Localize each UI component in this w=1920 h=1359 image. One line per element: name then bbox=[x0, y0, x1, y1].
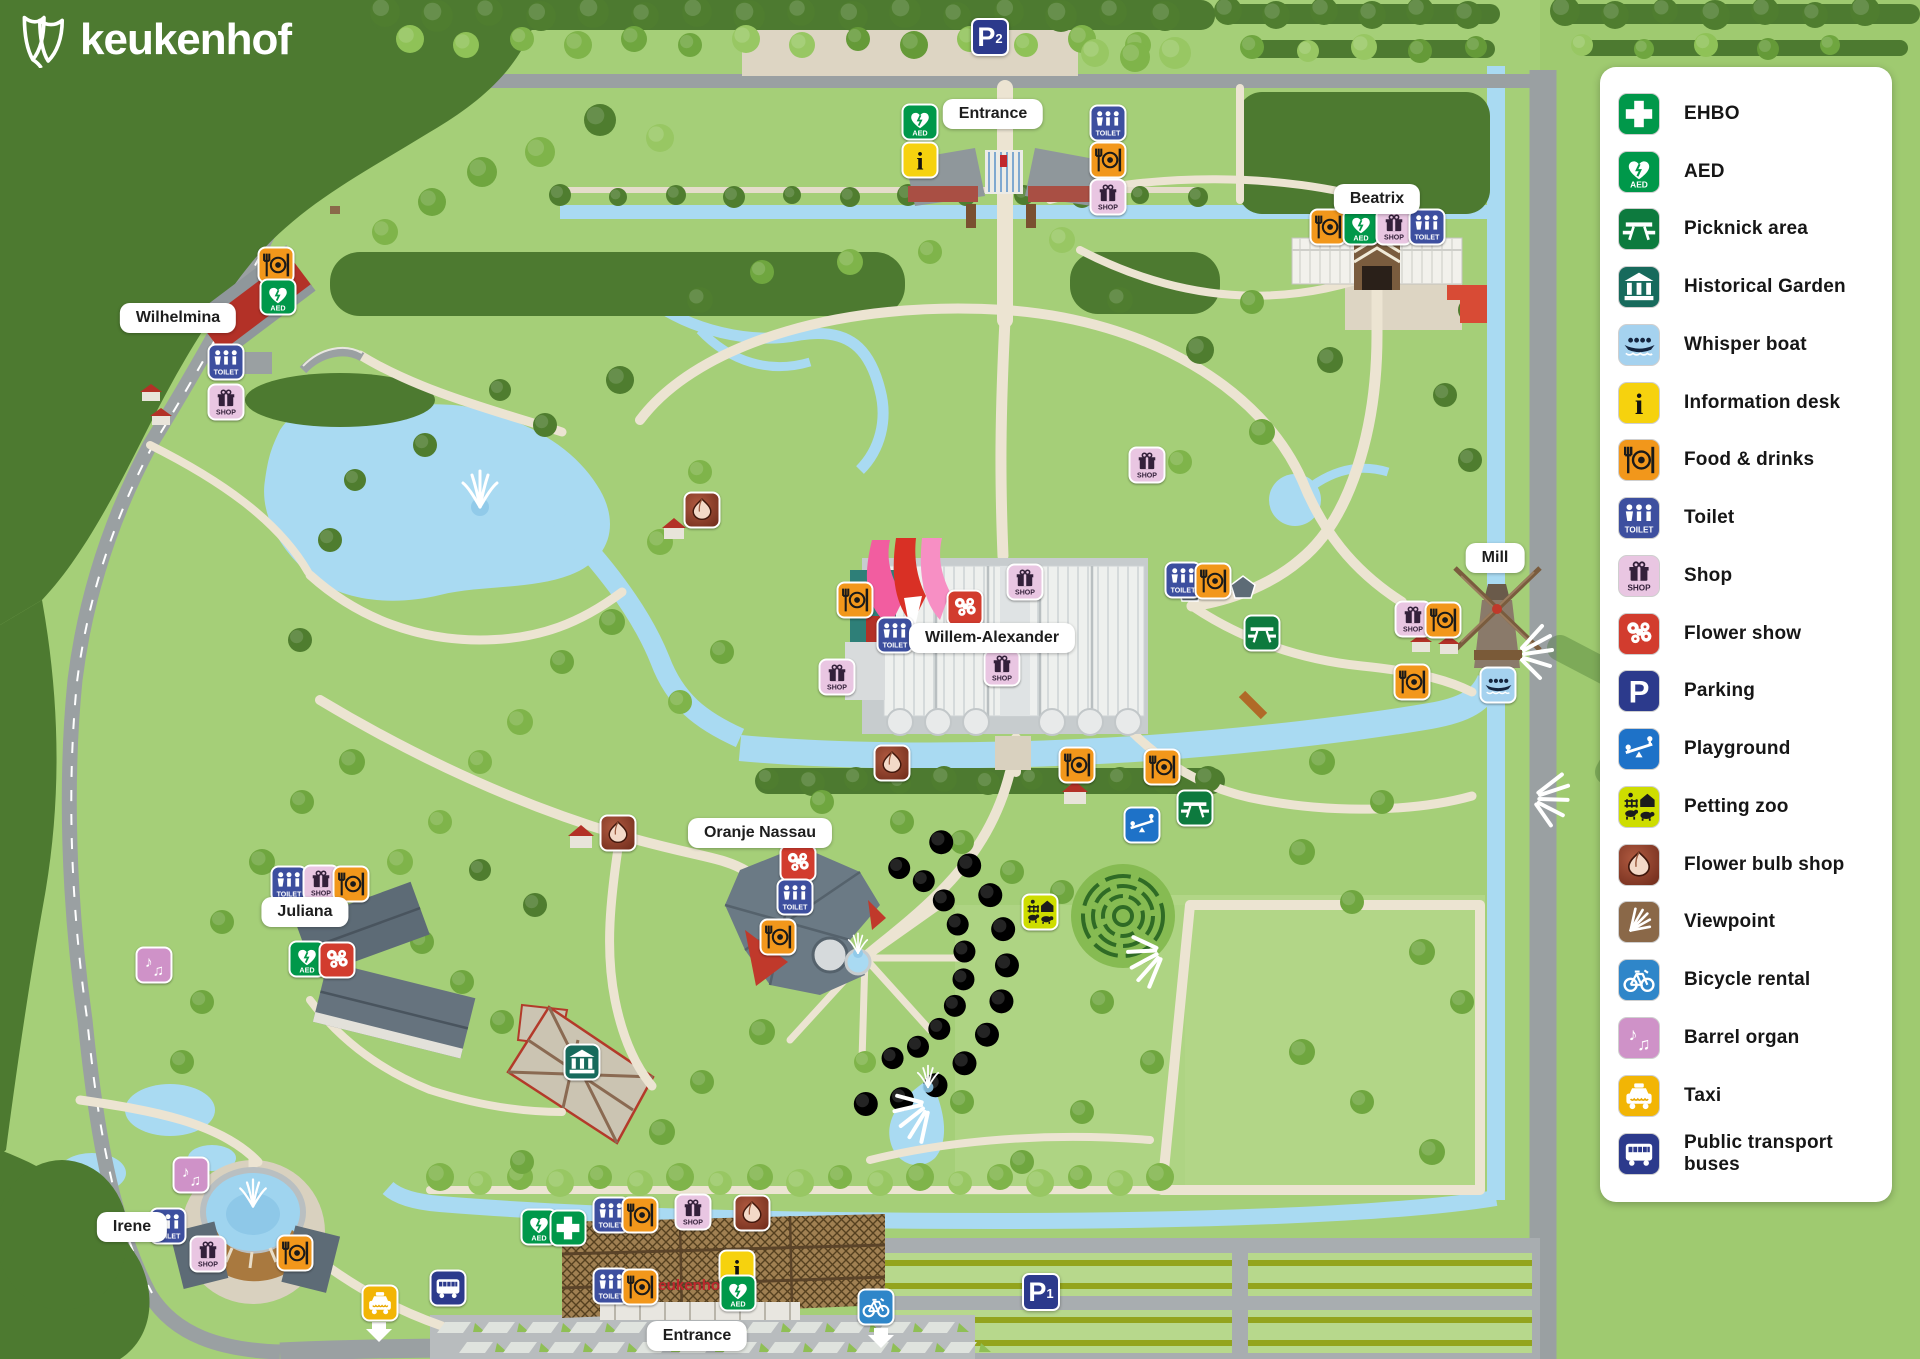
legend-item-food: Food & drinks bbox=[1618, 439, 1892, 481]
legend-item-historical: Historical Garden bbox=[1618, 266, 1892, 308]
whisperboat-icon[interactable] bbox=[1480, 667, 1517, 704]
legend-item-label: Barrel organ bbox=[1684, 1027, 1799, 1049]
svg-text:TOILET: TOILET bbox=[1096, 130, 1122, 137]
legend-item-shop: SHOPShop bbox=[1618, 555, 1892, 597]
svg-text:TOILET: TOILET bbox=[883, 642, 909, 649]
svg-text:SHOP: SHOP bbox=[683, 1219, 703, 1226]
keukenhof-park-map: keukenhof bbox=[0, 0, 1920, 1359]
svg-text:TOILET: TOILET bbox=[1171, 587, 1197, 594]
playground-icon bbox=[1618, 728, 1660, 770]
shop-icon[interactable]: SHOP bbox=[984, 650, 1021, 687]
legend-item-bulbshop: Flower bulb shop bbox=[1618, 844, 1892, 886]
legend-item-label: Toilet bbox=[1684, 507, 1734, 529]
historical-icon[interactable] bbox=[564, 1044, 601, 1081]
map-label-juliana: Juliana bbox=[261, 897, 348, 927]
toilet-icon[interactable]: TOILET bbox=[1409, 209, 1446, 246]
shop-icon[interactable]: SHOP bbox=[1376, 209, 1413, 246]
food-icon[interactable] bbox=[1195, 563, 1232, 600]
ehbo-icon[interactable] bbox=[550, 1210, 587, 1247]
shop-icon[interactable]: SHOP bbox=[819, 659, 856, 696]
svg-text:♫: ♫ bbox=[1637, 1034, 1651, 1054]
bulbshop-icon[interactable] bbox=[734, 1195, 771, 1232]
bulbshop-icon[interactable] bbox=[684, 492, 721, 529]
flowershow-icon[interactable] bbox=[780, 845, 817, 882]
svg-text:AED: AED bbox=[531, 1233, 546, 1242]
shop-icon[interactable]: SHOP bbox=[208, 384, 245, 421]
info-icon[interactable]: i bbox=[902, 142, 939, 179]
svg-text:AED: AED bbox=[1353, 233, 1368, 242]
svg-text:SHOP: SHOP bbox=[1403, 626, 1423, 633]
svg-text:i: i bbox=[916, 146, 923, 175]
food-icon[interactable] bbox=[837, 582, 874, 619]
flowershow-icon[interactable] bbox=[947, 590, 984, 627]
legend-item-label: Food & drinks bbox=[1684, 449, 1814, 471]
barrelorgan-icon: ♪♫ bbox=[1618, 1017, 1660, 1059]
legend-item-toilet: TOILETToilet bbox=[1618, 497, 1892, 539]
legend-item-barrelorgan: ♪♫Barrel organ bbox=[1618, 1017, 1892, 1059]
tulip-logo-icon bbox=[20, 12, 68, 68]
legend-item-label: EHBO bbox=[1684, 103, 1740, 125]
pettingzoo-icon bbox=[1618, 786, 1660, 828]
toilet-icon[interactable]: TOILET bbox=[1090, 105, 1127, 142]
taxi-icon bbox=[1618, 1075, 1660, 1117]
pettingzoo-icon[interactable] bbox=[1022, 894, 1059, 931]
bulbshop-icon[interactable] bbox=[600, 815, 637, 852]
toilet-icon[interactable]: TOILET bbox=[208, 344, 245, 381]
legend-item-label: Shop bbox=[1684, 565, 1732, 587]
legend-item-label: Taxi bbox=[1684, 1085, 1721, 1107]
svg-text:keukenhof: keukenhof bbox=[650, 1277, 726, 1294]
bicycle-icon[interactable] bbox=[858, 1289, 895, 1326]
svg-text:TOILET: TOILET bbox=[599, 1293, 625, 1300]
map-label-beatrix: Beatrix bbox=[1334, 184, 1420, 214]
parking-sign-p1: P1 bbox=[1022, 1273, 1060, 1311]
historical-icon bbox=[1618, 266, 1660, 308]
toilet-icon: TOILET bbox=[1618, 497, 1660, 539]
map-label-entrance-bottom: Entrance bbox=[647, 1321, 747, 1351]
svg-text:TOILET: TOILET bbox=[1625, 525, 1654, 534]
food-icon[interactable] bbox=[1059, 747, 1096, 784]
shop-icon[interactable]: SHOP bbox=[675, 1194, 712, 1231]
bulbshop-icon bbox=[1618, 844, 1660, 886]
legend-item-info: iInformation desk bbox=[1618, 382, 1892, 424]
food-icon[interactable] bbox=[1310, 209, 1347, 246]
picnic-icon bbox=[1618, 208, 1660, 250]
legend-item-bus: Public transport buses bbox=[1618, 1132, 1892, 1176]
parking-icon: P bbox=[1618, 670, 1660, 712]
legend-item-label: Public transport buses bbox=[1684, 1132, 1892, 1176]
svg-text:P: P bbox=[1629, 675, 1650, 710]
legend-item-flowershow: Flower show bbox=[1618, 613, 1892, 655]
legend-item-picnic: Picknick area bbox=[1618, 208, 1892, 250]
shop-icon[interactable]: SHOP bbox=[1129, 447, 1166, 484]
legend-item-bicycle: Bicycle rental bbox=[1618, 959, 1892, 1001]
legend-item-label: Bicycle rental bbox=[1684, 969, 1810, 991]
svg-text:SHOP: SHOP bbox=[1098, 204, 1118, 211]
barrelorgan-icon[interactable]: ♪♫ bbox=[173, 1157, 210, 1194]
playground-icon[interactable] bbox=[1124, 807, 1161, 844]
svg-text:AED: AED bbox=[270, 303, 285, 312]
svg-text:♫: ♫ bbox=[152, 962, 164, 979]
legend-item-label: Parking bbox=[1684, 680, 1755, 702]
map-label-willem-alexander: Willem-Alexander bbox=[909, 623, 1075, 653]
svg-text:SHOP: SHOP bbox=[198, 1261, 218, 1268]
info-icon: i bbox=[1618, 382, 1660, 424]
food-icon[interactable] bbox=[1394, 664, 1431, 701]
legend-item-label: Petting zoo bbox=[1684, 796, 1789, 818]
map-label-oranje-nassau: Oranje Nassau bbox=[688, 818, 832, 848]
food-icon[interactable] bbox=[1090, 142, 1127, 179]
legend-item-parking: PParking bbox=[1618, 670, 1892, 712]
svg-text:SHOP: SHOP bbox=[1384, 234, 1404, 241]
ehbo-icon bbox=[1618, 93, 1660, 135]
bus-icon[interactable] bbox=[430, 1270, 467, 1307]
viewpoint-icon bbox=[1618, 901, 1660, 943]
keukenhof-logo: keukenhof bbox=[20, 12, 291, 68]
bicycle-icon bbox=[1618, 959, 1660, 1001]
aed-icon[interactable]: AED bbox=[260, 279, 297, 316]
food-icon[interactable] bbox=[760, 919, 797, 956]
legend-item-label: Historical Garden bbox=[1684, 276, 1846, 298]
map-label-wilhelmina: Wilhelmina bbox=[120, 303, 236, 333]
svg-text:AED: AED bbox=[299, 965, 314, 974]
aed-icon[interactable]: AED bbox=[720, 1275, 757, 1312]
picnic-icon[interactable] bbox=[1177, 790, 1214, 827]
legend-item-whisperboat: Whisper boat bbox=[1618, 324, 1892, 366]
svg-text:SHOP: SHOP bbox=[1627, 583, 1651, 592]
svg-text:TOILET: TOILET bbox=[214, 369, 240, 376]
svg-text:AED: AED bbox=[912, 128, 927, 137]
svg-text:AED: AED bbox=[1630, 179, 1648, 189]
shop-icon[interactable]: SHOP bbox=[1007, 564, 1044, 601]
legend-item-viewpoint: Viewpoint bbox=[1618, 901, 1892, 943]
legend-item-label: Whisper boat bbox=[1684, 334, 1807, 356]
svg-text:TOILET: TOILET bbox=[599, 1222, 625, 1229]
food-icon[interactable] bbox=[1144, 749, 1181, 786]
legend-item-label: Flower bulb shop bbox=[1684, 854, 1844, 876]
legend-item-ehbo: EHBO bbox=[1618, 93, 1892, 135]
svg-text:TOILET: TOILET bbox=[783, 904, 809, 911]
svg-text:SHOP: SHOP bbox=[992, 675, 1012, 682]
svg-text:SHOP: SHOP bbox=[827, 684, 847, 691]
picnic-icon[interactable] bbox=[1244, 615, 1281, 652]
svg-text:AED: AED bbox=[730, 1299, 745, 1308]
flowershow-icon bbox=[1618, 613, 1660, 655]
map-label-mill: Mill bbox=[1466, 543, 1525, 573]
map-label-entrance-top: Entrance bbox=[943, 99, 1043, 129]
bus-icon bbox=[1618, 1133, 1660, 1175]
aed-icon[interactable]: AED bbox=[1343, 209, 1380, 246]
shop-icon[interactable]: SHOP bbox=[190, 1236, 227, 1273]
svg-text:♫: ♫ bbox=[189, 1172, 201, 1189]
food-icon[interactable] bbox=[622, 1197, 659, 1234]
svg-text:SHOP: SHOP bbox=[216, 409, 236, 416]
barrelorgan-icon[interactable]: ♪♫ bbox=[136, 947, 173, 984]
toilet-icon[interactable]: TOILET bbox=[777, 879, 814, 916]
shop-icon: SHOP bbox=[1618, 555, 1660, 597]
svg-text:TOILET: TOILET bbox=[1415, 234, 1441, 241]
legend-item-label: Flower show bbox=[1684, 623, 1801, 645]
legend-item-aed: AEDAED bbox=[1618, 151, 1892, 193]
taxi-icon[interactable] bbox=[362, 1285, 399, 1322]
flowershow-icon[interactable] bbox=[319, 942, 356, 979]
aed-icon: AED bbox=[1618, 151, 1660, 193]
aed-icon[interactable]: AED bbox=[902, 104, 939, 141]
whisperboat-icon bbox=[1618, 324, 1660, 366]
food-icon[interactable] bbox=[277, 1235, 314, 1272]
svg-text:SHOP: SHOP bbox=[1137, 472, 1157, 479]
legend-item-label: Playground bbox=[1684, 738, 1791, 760]
legend-item-label: Picknick area bbox=[1684, 218, 1808, 240]
legend-item-label: Viewpoint bbox=[1684, 911, 1775, 933]
legend-item-playground: Playground bbox=[1618, 728, 1892, 770]
bulbshop-icon[interactable] bbox=[874, 745, 911, 782]
food-icon bbox=[1618, 439, 1660, 481]
svg-text:SHOP: SHOP bbox=[1015, 589, 1035, 596]
food-icon[interactable] bbox=[622, 1269, 659, 1306]
legend-item-label: AED bbox=[1684, 161, 1725, 183]
svg-text:i: i bbox=[1635, 387, 1643, 420]
legend-item-label: Information desk bbox=[1684, 392, 1840, 414]
legend-item-pettingzoo: Petting zoo bbox=[1618, 786, 1892, 828]
map-label-irene: Irene bbox=[97, 1212, 167, 1242]
shop-icon[interactable]: SHOP bbox=[1090, 179, 1127, 216]
legend-item-taxi: Taxi bbox=[1618, 1075, 1892, 1117]
parking-sign-p2: P2 bbox=[971, 18, 1009, 56]
food-icon[interactable] bbox=[1425, 602, 1462, 639]
logo-wordmark: keukenhof bbox=[80, 15, 291, 65]
toilet-icon[interactable]: TOILET bbox=[877, 617, 914, 654]
legend-panel: EHBOAEDAEDPicknick areaHistorical Garden… bbox=[1600, 67, 1892, 1202]
